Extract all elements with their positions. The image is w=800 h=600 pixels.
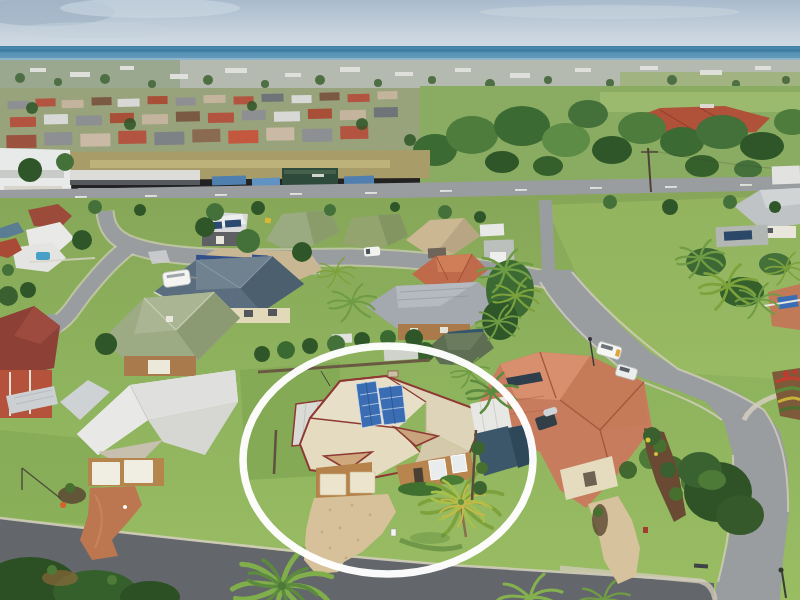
cloud — [15, 22, 175, 38]
fields-and-trees-right — [413, 86, 800, 186]
letterbox — [643, 527, 648, 533]
front-door — [413, 468, 424, 484]
solar-row — [724, 230, 752, 240]
roof-vent — [388, 371, 398, 377]
white-bird — [123, 505, 127, 509]
yellow-object — [265, 218, 272, 224]
aerial-photo — [0, 0, 800, 600]
letterbox — [391, 529, 396, 536]
garage-door — [350, 472, 375, 493]
swimming-pool — [36, 252, 50, 260]
window — [451, 454, 467, 473]
orange-pot — [60, 502, 66, 508]
garage-door — [92, 462, 120, 485]
garage-door — [124, 460, 153, 483]
solar-array — [356, 381, 406, 428]
cloud — [480, 5, 740, 19]
garage-door — [320, 474, 346, 495]
